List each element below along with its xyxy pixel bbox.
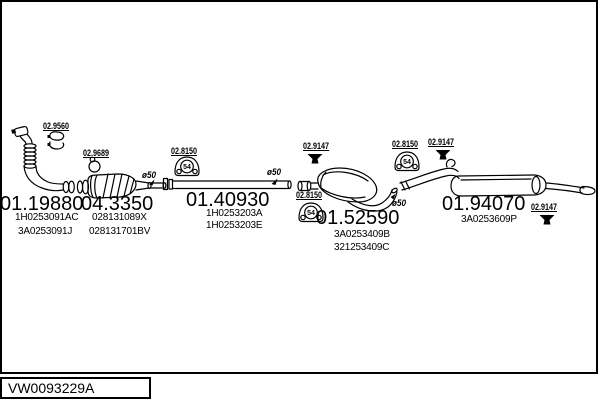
diagram-frame [0,0,598,374]
fitting-code-hanger-3[interactable]: 02.8150 [392,140,418,149]
vehicle-reference-code: VW0093229A [8,380,94,396]
oem-number: 3A0253091J [18,227,72,237]
diameter-callout: ø50 [392,199,406,208]
fitting-code-clamp-2[interactable]: 02.9147 [428,138,454,147]
fitting-code-clamp-3[interactable]: 02.9147 [531,203,557,212]
fitting-code-hanger-2[interactable]: 02.8150 [296,191,322,200]
oem-number: 3A0253409B [334,230,390,240]
oem-number: 028131089X [92,213,147,223]
fitting-code-clamp-1[interactable]: 02.9147 [303,142,329,151]
fitting-code-clamp-front[interactable]: 02.9560 [43,122,69,131]
part-code-front-pipe[interactable]: 01.19880 [0,194,83,214]
oem-number: 1H0253203E [206,221,262,231]
oem-number: 028131701BV [89,227,150,237]
diameter-callout: ø50 [267,168,281,177]
oem-number: 321253409C [334,243,389,253]
oem-number: 1H0253091AC [15,213,78,223]
part-code-catalyst[interactable]: 04.3350 [81,194,153,214]
part-code-center-pipe[interactable]: 01.40930 [186,190,269,210]
part-code-center-muffler[interactable]: 01.52590 [316,208,399,228]
fitting-code-gasket-ring[interactable]: 02.9689 [83,149,109,158]
oem-number: 3A0253609P [461,215,517,225]
diameter-callout: ø50 [142,171,156,180]
vehicle-reference-box: VW0093229A [0,377,151,399]
fitting-code-hanger-1[interactable]: 02.8150 [171,147,197,156]
exhaust-diagram-page: 54 [0,0,600,400]
oem-number: 1H0253203A [206,209,262,219]
part-code-rear-muffler[interactable]: 01.94070 [442,194,525,214]
